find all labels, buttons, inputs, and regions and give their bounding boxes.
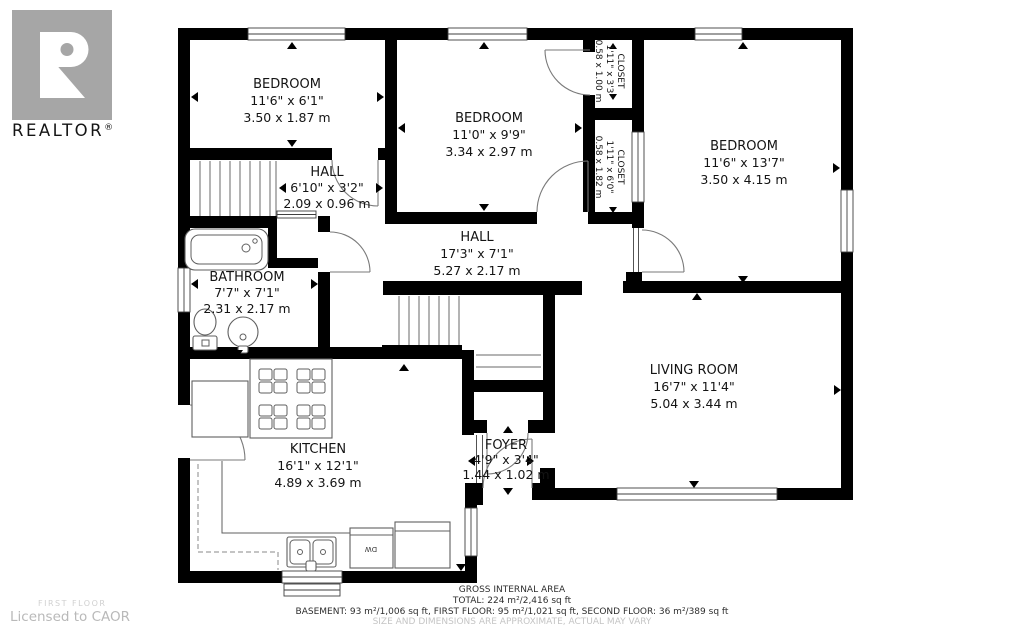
bedroom3-door bbox=[642, 230, 684, 272]
svg-text:CLOSET: CLOSET bbox=[615, 54, 625, 89]
area-summary-floors: BASEMENT: 93 m²/1,006 sq ft, FIRST FLOOR… bbox=[0, 607, 1024, 618]
area-summary-total: TOTAL: 224 m²/2,416 sq ft bbox=[0, 596, 1024, 607]
svg-text:HALL: HALL bbox=[460, 230, 494, 245]
label-bathroom: BATHROOM 7'7" x 7'1" 2.31 x 2.17 m bbox=[203, 270, 290, 316]
svg-text:1'11" x 3'3": 1'11" x 3'3" bbox=[604, 45, 614, 98]
svg-text:11'0" x 9'9": 11'0" x 9'9" bbox=[452, 127, 525, 142]
svg-text:11'6" x 6'1": 11'6" x 6'1" bbox=[250, 93, 323, 108]
area-summary: GROSS INTERNAL AREA TOTAL: 224 m²/2,416 … bbox=[0, 585, 1024, 628]
label-foyer: FOYER 4'9" x 3'4" 1.44 x 1.02 m bbox=[462, 438, 549, 482]
label-bedroom1: BEDROOM 11'6" x 6'1" 3.50 x 1.87 m bbox=[243, 77, 330, 125]
kitchen-sink bbox=[287, 537, 336, 571]
svg-text:6'10" x 3'2": 6'10" x 3'2" bbox=[290, 180, 363, 195]
stairs-upper bbox=[200, 161, 276, 216]
label-living-room: LIVING ROOM 16'7" x 11'4" 5.04 x 3.44 m bbox=[650, 363, 738, 411]
label-hall-upper: HALL 6'10" x 3'2" 2.09 x 0.96 m bbox=[283, 165, 370, 211]
refrigerator bbox=[192, 381, 248, 437]
bathroom-door bbox=[330, 232, 370, 272]
area-summary-disclaimer: SIZE AND DIMENSIONS ARE APPROXIMATE, ACT… bbox=[0, 617, 1024, 628]
svg-text:LIVING ROOM: LIVING ROOM bbox=[650, 363, 738, 378]
label-closet-upper: CLOSET 1'11" x 3'3" 0.58 x 1.00 m bbox=[593, 40, 625, 103]
label-hall-main: HALL 17'3" x 7'1" 5.27 x 2.17 m bbox=[433, 230, 520, 278]
svg-text:11'6" x 13'7": 11'6" x 13'7" bbox=[703, 155, 784, 170]
svg-text:KITCHEN: KITCHEN bbox=[290, 442, 346, 457]
bedroom2-door bbox=[537, 161, 588, 212]
svg-text:3.34 x 2.97 m: 3.34 x 2.97 m bbox=[445, 144, 532, 159]
label-bedroom2: BEDROOM 11'0" x 9'9" 3.34 x 2.97 m bbox=[445, 111, 532, 159]
svg-text:7'7" x 7'1": 7'7" x 7'1" bbox=[214, 285, 280, 300]
svg-text:FOYER: FOYER bbox=[485, 438, 527, 453]
dishwasher: DW bbox=[350, 528, 393, 568]
svg-text:BATHROOM: BATHROOM bbox=[209, 270, 284, 285]
svg-text:5.27 x 2.17 m: 5.27 x 2.17 m bbox=[433, 263, 520, 278]
svg-text:17'3" x 7'1": 17'3" x 7'1" bbox=[440, 246, 513, 261]
svg-text:2.09 x 0.96 m: 2.09 x 0.96 m bbox=[283, 196, 370, 211]
oven-range bbox=[395, 522, 450, 568]
dishwasher-label: DW bbox=[365, 545, 377, 553]
area-summary-title: GROSS INTERNAL AREA bbox=[0, 585, 1024, 596]
svg-text:0.58 x 1.82 m: 0.58 x 1.82 m bbox=[593, 136, 603, 199]
svg-text:2.31 x 2.17 m: 2.31 x 2.17 m bbox=[203, 301, 290, 316]
label-kitchen: KITCHEN 16'1" x 12'1" 4.89 x 3.69 m bbox=[274, 442, 361, 490]
svg-text:4'9" x 3'4": 4'9" x 3'4" bbox=[473, 452, 539, 467]
svg-text:5.04 x 3.44 m: 5.04 x 3.44 m bbox=[650, 396, 737, 411]
svg-text:0.58 x 1.00 m: 0.58 x 1.00 m bbox=[593, 40, 603, 103]
svg-text:1.44 x 1.02 m: 1.44 x 1.02 m bbox=[462, 467, 549, 482]
bathtub bbox=[185, 229, 268, 270]
svg-text:BEDROOM: BEDROOM bbox=[710, 139, 778, 154]
svg-text:1'11" x 6'0": 1'11" x 6'0" bbox=[604, 141, 614, 194]
floorplan-drawing: DW BEDROOM bbox=[0, 0, 1024, 639]
svg-text:BEDROOM: BEDROOM bbox=[455, 111, 523, 126]
svg-text:16'7" x 11'4": 16'7" x 11'4" bbox=[653, 379, 734, 394]
stove bbox=[250, 359, 332, 438]
svg-text:3.50 x 4.15 m: 3.50 x 4.15 m bbox=[700, 172, 787, 187]
label-bedroom3: BEDROOM 11'6" x 13'7" 3.50 x 4.15 m bbox=[700, 139, 787, 187]
floorplan-page: REALTOR® bbox=[0, 0, 1024, 639]
svg-text:BEDROOM: BEDROOM bbox=[253, 77, 321, 92]
label-closet-lower: CLOSET 1'11" x 6'0" 0.58 x 1.82 m bbox=[593, 136, 625, 199]
svg-text:HALL: HALL bbox=[310, 165, 344, 180]
svg-text:3.50 x 1.87 m: 3.50 x 1.87 m bbox=[243, 110, 330, 125]
svg-text:CLOSET: CLOSET bbox=[615, 150, 625, 185]
svg-text:16'1" x 12'1": 16'1" x 12'1" bbox=[277, 458, 358, 473]
svg-text:4.89 x 3.69 m: 4.89 x 3.69 m bbox=[274, 475, 361, 490]
